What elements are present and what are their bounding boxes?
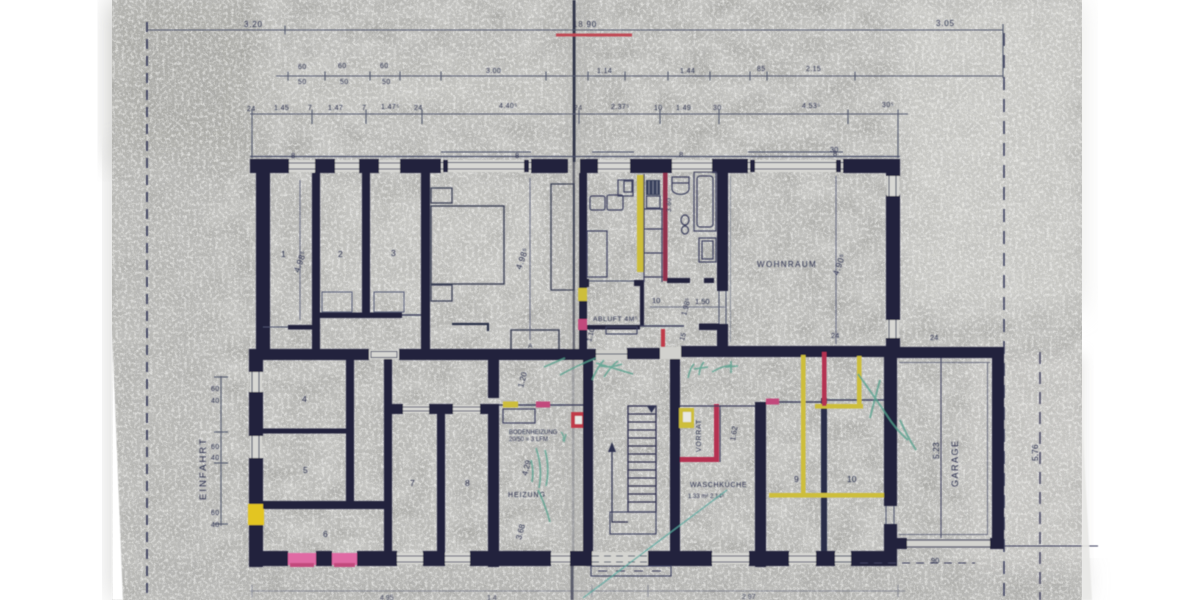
svg-text:1.14: 1.14: [597, 68, 612, 75]
svg-text:VORRAT: VORRAT: [696, 419, 703, 452]
svg-text:5.76: 5.76: [1030, 444, 1040, 461]
svg-text:8: 8: [515, 151, 519, 160]
svg-text:30⁵: 30⁵: [882, 102, 894, 109]
svg-text:2.37⁵: 2.37⁵: [611, 104, 630, 111]
svg-text:1.49: 1.49: [676, 105, 691, 112]
svg-text:60: 60: [211, 444, 220, 451]
svg-text:60: 60: [298, 64, 307, 71]
svg-text:90: 90: [931, 556, 939, 565]
svg-text:24: 24: [831, 331, 839, 340]
svg-text:3: 3: [391, 248, 396, 258]
svg-text:5: 5: [303, 465, 308, 475]
svg-text:24: 24: [930, 333, 938, 342]
svg-text:2.97: 2.97: [742, 594, 756, 600]
svg-text:1.4: 1.4: [487, 595, 497, 600]
svg-text:7: 7: [362, 105, 366, 112]
svg-text:10: 10: [652, 296, 660, 305]
svg-text:3.20: 3.20: [244, 20, 263, 29]
svg-text:3.05: 3.05: [936, 19, 955, 28]
svg-text:8: 8: [679, 150, 683, 159]
svg-text:40: 40: [211, 398, 220, 405]
svg-text:24: 24: [247, 106, 256, 113]
svg-text:50: 50: [382, 79, 391, 86]
svg-text:10: 10: [847, 474, 857, 484]
svg-text:WOHNRAUM: WOHNRAUM: [757, 260, 817, 269]
svg-text:EINFAHRT: EINFAHRT: [198, 437, 209, 500]
svg-text:1.47: 1.47: [328, 105, 343, 112]
svg-text:3.00: 3.00: [486, 68, 501, 75]
svg-text:7: 7: [410, 478, 415, 488]
svg-text:3.60: 3.60: [666, 198, 673, 212]
svg-text:6: 6: [323, 529, 328, 539]
svg-text:A: A: [528, 343, 533, 350]
svg-text:1.50: 1.50: [695, 297, 710, 306]
svg-text:20/50 = 3 LFM: 20/50 = 3 LFM: [509, 437, 548, 443]
svg-text:2: 2: [338, 249, 343, 259]
svg-text:1.45: 1.45: [274, 105, 289, 112]
svg-text:50: 50: [298, 79, 307, 86]
svg-text:5.23: 5.23: [931, 442, 941, 459]
svg-text:4.40⁵: 4.40⁵: [499, 103, 518, 110]
svg-text:60: 60: [211, 510, 220, 517]
svg-text:24: 24: [574, 105, 583, 112]
svg-text:ABLUFT 4M⁵: ABLUFT 4M⁵: [593, 316, 638, 323]
svg-text:WASCHKÜCHE: WASCHKÜCHE: [690, 481, 747, 489]
svg-text:60: 60: [211, 386, 220, 393]
svg-text:4.53⁵: 4.53⁵: [802, 103, 821, 110]
svg-text:60: 60: [380, 63, 389, 70]
svg-text:40: 40: [211, 522, 220, 529]
svg-text:1.44: 1.44: [680, 68, 695, 75]
svg-text:4: 4: [302, 394, 307, 404]
svg-text:1.47⁵: 1.47⁵: [381, 104, 400, 111]
svg-text:7: 7: [308, 105, 312, 112]
svg-text:30: 30: [713, 105, 722, 112]
svg-text:2.15: 2.15: [806, 66, 821, 73]
svg-text:24: 24: [414, 105, 423, 112]
svg-text:8: 8: [833, 149, 837, 158]
svg-text:1: 1: [281, 249, 286, 259]
svg-text:50: 50: [340, 79, 349, 86]
svg-text:BODENHEIZUNG: BODENHEIZUNG: [509, 430, 558, 436]
svg-text:60: 60: [338, 63, 347, 70]
svg-text:85: 85: [757, 66, 766, 73]
svg-text:18.90: 18.90: [573, 20, 597, 29]
svg-text:9: 9: [794, 474, 799, 484]
svg-text:4.95: 4.95: [380, 595, 394, 600]
svg-text:GARAGE: GARAGE: [950, 439, 960, 487]
svg-text:8: 8: [465, 478, 470, 488]
svg-text:8: 8: [291, 151, 295, 160]
svg-text:10: 10: [654, 105, 663, 112]
svg-text:40: 40: [211, 455, 220, 462]
